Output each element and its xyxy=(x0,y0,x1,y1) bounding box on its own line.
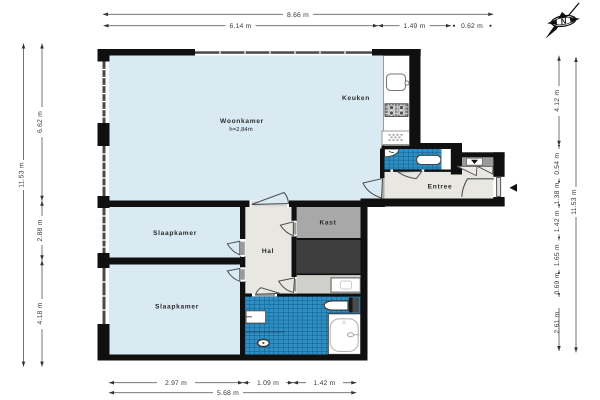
svg-text:0.54 m: 0.54 m xyxy=(554,153,561,175)
svg-text:6.14 m: 6.14 m xyxy=(230,23,252,30)
svg-text:8.66 m: 8.66 m xyxy=(287,12,309,19)
svg-text:5.68 m: 5.68 m xyxy=(217,390,239,397)
svg-text:6.62 m: 6.62 m xyxy=(37,111,44,133)
svg-text:Keuken: Keuken xyxy=(342,95,370,102)
svg-text:Woonkamer: Woonkamer xyxy=(220,118,264,125)
svg-text:1.65 m: 1.65 m xyxy=(554,244,561,266)
svg-text:1.42 m: 1.42 m xyxy=(314,380,336,387)
svg-text:2.97 m: 2.97 m xyxy=(165,380,187,387)
svg-text:2.88 m: 2.88 m xyxy=(37,219,44,241)
svg-text:h=2,84m: h=2,84m xyxy=(229,126,253,133)
svg-text:0.62 m: 0.62 m xyxy=(461,23,483,30)
svg-text:11.53 m: 11.53 m xyxy=(571,189,578,215)
svg-text:Entree: Entree xyxy=(428,184,453,191)
svg-text:2.61 m: 2.61 m xyxy=(554,311,561,333)
svg-text:1.38 m: 1.38 m xyxy=(554,182,561,204)
svg-text:0.69 m: 0.69 m xyxy=(554,272,561,294)
svg-text:4.18 m: 4.18 m xyxy=(37,302,44,324)
svg-text:Slaapkamer: Slaapkamer xyxy=(153,230,197,237)
svg-text:4.12 m: 4.12 m xyxy=(554,90,561,112)
svg-text:11.53 m: 11.53 m xyxy=(19,162,26,188)
svg-text:1.09 m: 1.09 m xyxy=(257,380,279,387)
svg-text:Slaapkamer: Slaapkamer xyxy=(155,304,199,311)
svg-text:Kast: Kast xyxy=(319,220,336,227)
svg-text:1.42 m: 1.42 m xyxy=(554,210,561,232)
svg-text:1.49 m: 1.49 m xyxy=(404,23,426,30)
svg-text:Hal: Hal xyxy=(262,248,274,255)
